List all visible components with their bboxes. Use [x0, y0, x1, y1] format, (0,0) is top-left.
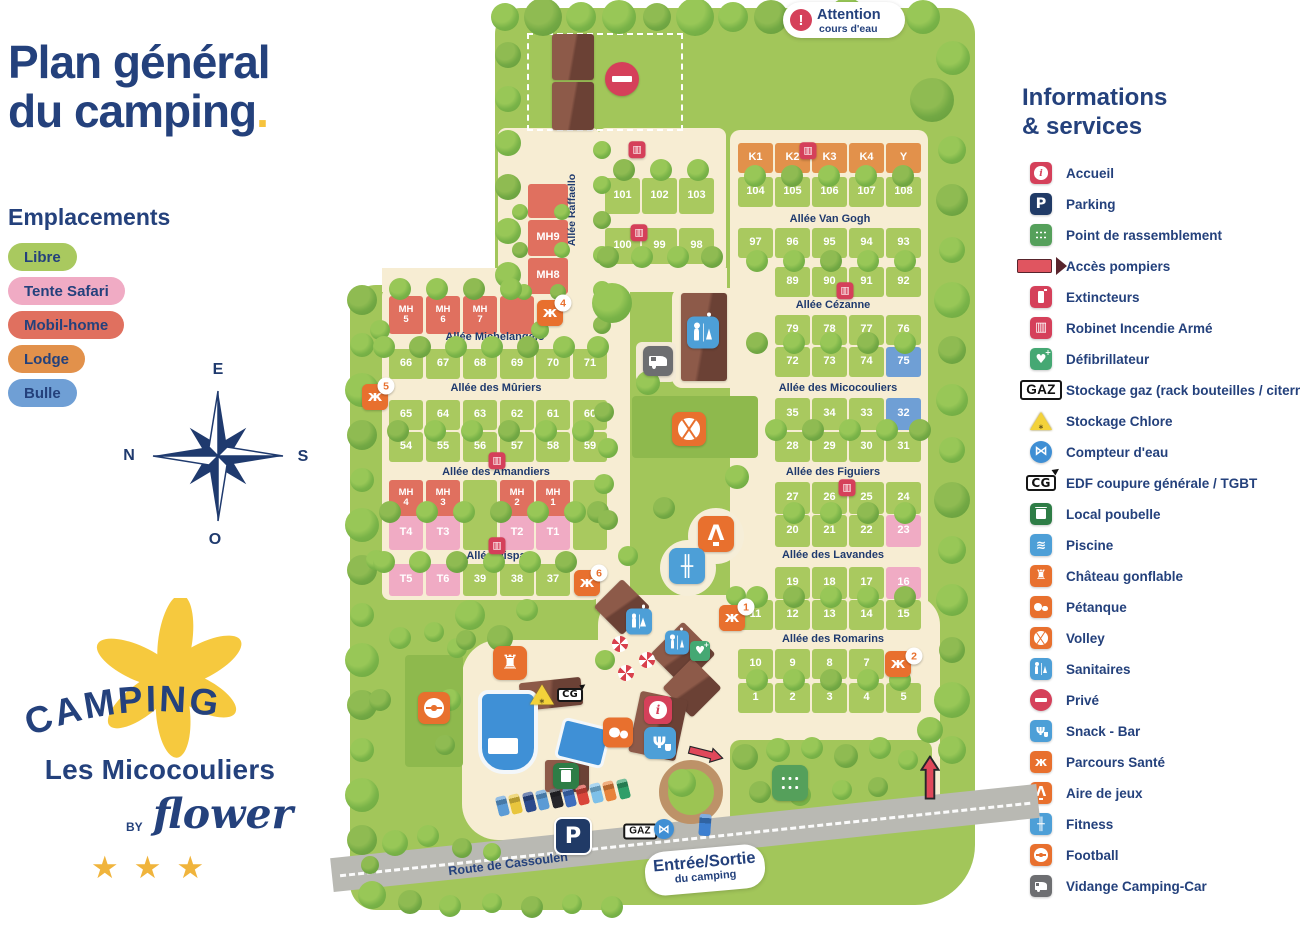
tree: [398, 890, 422, 914]
parcours-badge-6: 6: [591, 565, 608, 582]
map-compteur-marker: ⋈: [654, 819, 674, 839]
poubelle-icon: [1030, 503, 1052, 525]
service-item-parcours: жParcours Santé: [1022, 747, 1300, 778]
tree: [373, 336, 395, 358]
tree: [463, 278, 485, 300]
service-icon-wrap: i: [1022, 162, 1060, 184]
tree: [939, 237, 965, 263]
tree: [597, 246, 619, 268]
service-icon-wrap: ≋: [1022, 534, 1060, 556]
tree: [857, 586, 879, 608]
petanque-icon: [1030, 596, 1052, 618]
tree: [347, 825, 377, 855]
tree: [857, 502, 879, 524]
tree: [424, 420, 446, 442]
tree: [894, 250, 916, 272]
tree: [934, 682, 970, 718]
legend-pill-mobil: Mobil-home: [8, 311, 124, 339]
logo-stars: ★★★: [10, 850, 300, 886]
chateau-icon: ♜: [493, 646, 527, 680]
tree: [802, 419, 824, 441]
parcours-icon: ж: [1030, 751, 1052, 773]
ria-icon: ▥: [489, 538, 506, 555]
tree: [373, 551, 395, 573]
service-label: Snack - Bar: [1066, 724, 1140, 739]
tree: [417, 825, 439, 847]
tree: [613, 159, 635, 181]
service-icon-wrap: [1022, 689, 1060, 711]
service-item-piscine: ≋Piscine: [1022, 530, 1300, 561]
service-label: Robinet Incendie Armé: [1066, 321, 1213, 336]
tree: [389, 627, 411, 649]
tree: [389, 278, 411, 300]
map-chateau-marker: ♜: [493, 646, 527, 680]
tree: [594, 402, 614, 422]
tree: [643, 3, 671, 31]
map-arrow-right-marker: [688, 730, 724, 772]
tree: [345, 508, 379, 542]
noentry-icon: [605, 62, 639, 96]
map-sanitaires-marker: [626, 609, 652, 640]
map-snack-marker: Ψ: [644, 727, 676, 759]
service-label: Parcours Santé: [1066, 755, 1165, 770]
tree: [832, 780, 852, 800]
tree: [857, 250, 879, 272]
plot-102: 102: [642, 178, 677, 214]
flower-logo-icon: CAMPING: [10, 598, 310, 768]
service-label: Stockage Chlore: [1066, 414, 1173, 429]
tree: [482, 893, 502, 913]
tree: [917, 717, 943, 743]
tree: [749, 781, 771, 803]
tree: [445, 336, 467, 358]
snack-icon: Ψ: [1030, 720, 1052, 742]
map-parking-marker: P: [554, 817, 592, 855]
tree: [687, 159, 709, 181]
service-label: Défibrillateur: [1066, 352, 1149, 367]
service-icon-wrap: ♥+: [1022, 348, 1060, 370]
parcours-badge-4: 4: [555, 295, 572, 312]
tree: [495, 174, 521, 200]
car-on-road: [698, 814, 712, 837]
tree: [495, 218, 521, 244]
service-item-cg: CG▶EDF coupure générale / TGBT: [1022, 468, 1300, 499]
service-icon-wrap: [1022, 844, 1060, 866]
legend-heading: Emplacements: [8, 204, 170, 231]
svg-text:CAMPING: CAMPING: [19, 678, 223, 743]
tree: [593, 211, 611, 229]
tree: [409, 336, 431, 358]
tree: [898, 750, 918, 770]
map-noentry-marker: [605, 62, 639, 96]
tree: [783, 332, 805, 354]
service-label: Volley: [1066, 631, 1105, 646]
map-football-marker: [418, 692, 450, 724]
ria-icon: ▥: [631, 225, 648, 242]
map-arrow-up-marker: [920, 756, 940, 811]
tree: [598, 438, 618, 458]
tree: [495, 42, 521, 68]
private-building: [552, 82, 594, 130]
sidebar-heading: Informations& services: [1022, 84, 1300, 142]
map-vidange-marker: [643, 346, 673, 376]
service-label: Château gonflable: [1066, 569, 1183, 584]
tree: [746, 332, 768, 354]
page-title: Plan général du camping.: [8, 38, 270, 136]
tree: [350, 738, 374, 762]
tree: [936, 584, 968, 616]
tree: [521, 896, 543, 918]
chateau-icon: ♜: [1030, 565, 1052, 587]
map-cg-marker: CG▶: [561, 684, 579, 704]
tree: [818, 165, 840, 187]
tree: [783, 502, 805, 524]
ria-icon: ▥: [837, 283, 854, 300]
tree: [594, 474, 614, 494]
tree: [350, 333, 374, 357]
tree: [491, 3, 519, 31]
map-ria-marker: ▥: [800, 140, 817, 159]
map-ria-marker: ▥: [489, 450, 506, 469]
map-rassemblement-marker: [772, 765, 808, 801]
tree: [595, 650, 615, 670]
accueil-icon: i: [1030, 162, 1052, 184]
emplacements-legend: LibreTente SafariMobil-homeLodgeBulle: [8, 243, 125, 407]
page: Route de Cassoulen Allée Raffaello K1K2K…: [0, 0, 1300, 931]
tree: [936, 384, 968, 416]
service-item-fitness: ╫Fitness: [1022, 809, 1300, 840]
tree: [461, 420, 483, 442]
service-icon-wrap: [1022, 286, 1060, 308]
tree: [876, 419, 898, 441]
service-item-vidange: Vidange Camping-Car: [1022, 871, 1300, 902]
tree: [894, 586, 916, 608]
rassemblement-icon: [1030, 224, 1052, 246]
tree: [598, 510, 618, 530]
service-icon-wrap: GAZ: [1022, 380, 1060, 400]
chlore-icon: ∗: [1030, 410, 1052, 432]
alley-label: Allée des Micocouliers: [779, 382, 898, 394]
tree: [765, 419, 787, 441]
map-defib-marker: ♥+: [690, 641, 710, 661]
tree: [439, 895, 461, 917]
services-list: iAccueilPParkingPoint de rassemblementAc…: [1022, 158, 1300, 902]
service-label: Parking: [1066, 197, 1116, 212]
tree: [382, 830, 408, 856]
tree: [938, 336, 966, 364]
tree: [894, 332, 916, 354]
service-icon-wrap: [1022, 658, 1060, 680]
map-petanque-marker: [603, 718, 633, 753]
legend-pill-libre: Libre: [8, 243, 77, 271]
tree: [498, 420, 520, 442]
tree: [535, 420, 557, 442]
compass: E N S O: [115, 360, 325, 555]
gaz-icon: GAZ: [623, 824, 657, 840]
service-item-defib: ♥+Défibrillateur: [1022, 344, 1300, 375]
map-ria-marker: ▥: [839, 477, 856, 496]
tree: [820, 586, 842, 608]
tree: [379, 501, 401, 523]
attention-badge: ! Attention cours d'eau: [783, 2, 905, 38]
tree: [424, 622, 444, 642]
volley-icon: [1030, 627, 1052, 649]
compass-top-label: E: [213, 361, 224, 379]
tree: [572, 420, 594, 442]
service-icon-wrap: CG▶: [1022, 472, 1060, 494]
piscine-icon: ≋: [1030, 534, 1052, 556]
service-label: Accueil: [1066, 166, 1114, 181]
private-building: [552, 34, 594, 80]
service-icon-wrap: ▥: [1022, 317, 1060, 339]
tree: [483, 843, 501, 861]
service-item-accueil: iAccueil: [1022, 158, 1300, 189]
tree: [554, 242, 570, 258]
tree: [481, 336, 503, 358]
service-label: Sanitaires: [1066, 662, 1131, 677]
tree: [554, 204, 570, 220]
map-sanitaires-marker: [687, 317, 719, 354]
service-item-ria: ▥Robinet Incendie Armé: [1022, 313, 1300, 344]
tree: [426, 278, 448, 300]
warning-icon: !: [790, 9, 812, 31]
map-accueil-marker: i: [644, 696, 672, 724]
map-ria-marker: ▥: [629, 139, 646, 158]
poubelle-icon: [553, 763, 579, 789]
service-label: Vidange Camping-Car: [1066, 879, 1207, 894]
map-gaz-marker: GAZ: [623, 821, 657, 840]
windmill-icon: [639, 652, 655, 668]
tree: [592, 283, 632, 323]
vidange-icon: [1030, 875, 1052, 897]
tree: [939, 637, 965, 663]
service-label: Extincteurs: [1066, 290, 1140, 305]
tree: [347, 285, 377, 315]
service-item-rassemblement: Point de rassemblement: [1022, 220, 1300, 251]
service-label: Accès pompiers: [1066, 259, 1170, 274]
compteur-icon: ⋈: [654, 819, 674, 839]
service-item-snack: ΨSnack - Bar: [1022, 716, 1300, 747]
tree: [801, 737, 823, 759]
service-icon-wrap: [1022, 596, 1060, 618]
chlore-icon: ∗: [530, 683, 554, 707]
tree: [909, 419, 931, 441]
map-ria-marker: ▥: [837, 280, 854, 299]
tree: [409, 551, 431, 573]
tree: [435, 735, 455, 755]
plot-103: 103: [679, 178, 714, 214]
alley-label: Allée des Mûriers: [450, 382, 541, 394]
compass-right-label: S: [298, 448, 309, 466]
tree: [939, 437, 965, 463]
tree: [350, 468, 374, 492]
windmill-icon: [618, 665, 634, 681]
service-label: Compteur d'eau: [1066, 445, 1168, 460]
service-item-volley: Volley: [1022, 623, 1300, 654]
service-icon-wrap: [1022, 255, 1060, 277]
service-item-sanitaires: Sanitaires: [1022, 654, 1300, 685]
vidange-icon: [643, 346, 673, 376]
petanque-icon: [603, 718, 633, 748]
tree: [766, 738, 790, 762]
prive-icon: [1030, 689, 1052, 711]
tree: [746, 669, 768, 691]
alley-label: Allée Van Gogh: [790, 213, 871, 225]
logo-by: BY: [126, 820, 143, 834]
tree: [855, 165, 877, 187]
tree: [512, 242, 528, 258]
plot-MH7: MH7: [463, 296, 497, 334]
tree: [601, 896, 623, 918]
legend-pill-bulle: Bulle: [8, 379, 77, 407]
service-icon-wrap: [1022, 875, 1060, 897]
service-label: Pétanque: [1066, 600, 1127, 615]
service-item-pompiers: Accès pompiers: [1022, 251, 1300, 282]
tree: [869, 737, 891, 759]
tree: [446, 551, 468, 573]
tree: [516, 599, 538, 621]
tree: [566, 2, 596, 32]
tree: [553, 336, 575, 358]
tree: [453, 501, 475, 523]
ria-icon: ▥: [629, 142, 646, 159]
ria-icon: ▥: [489, 453, 506, 470]
title-accent-dot: .: [256, 85, 268, 137]
service-label: Privé: [1066, 693, 1099, 708]
arrow-right-icon: [688, 730, 724, 772]
parcours-badge-2: 2: [906, 648, 923, 665]
tree: [744, 165, 766, 187]
swimming-pool: [478, 690, 538, 774]
tree: [667, 246, 689, 268]
logo-brand: flower: [153, 790, 293, 838]
tree: [653, 497, 675, 519]
tree: [839, 419, 861, 441]
map-fitness-marker: ╫: [669, 548, 705, 584]
sanitaires-icon: [626, 609, 652, 635]
logo-word: CAMPING: [19, 678, 223, 743]
parking-icon: P: [554, 817, 592, 855]
compteur-icon: ⋈: [1030, 441, 1052, 463]
map-sanitaires-marker: [665, 631, 689, 660]
tree: [820, 669, 842, 691]
service-label: Football: [1066, 848, 1119, 863]
map-poubelle-marker: [553, 763, 579, 789]
tree: [345, 643, 379, 677]
map-ria-marker: ▥: [489, 535, 506, 554]
sanitaires-icon: [1030, 658, 1052, 680]
tree: [820, 332, 842, 354]
tree: [500, 278, 522, 300]
plot-MH6: MH6: [426, 296, 460, 334]
tree: [517, 336, 539, 358]
tree: [512, 204, 528, 220]
tree: [725, 465, 749, 489]
tree: [452, 838, 472, 858]
tree: [834, 744, 858, 768]
tree: [668, 769, 696, 797]
tree: [593, 176, 611, 194]
jeux-icon: Λ: [698, 516, 734, 552]
tree: [892, 165, 914, 187]
arrow-up-icon: [920, 756, 940, 811]
alley-label: Allée Cézanne: [796, 299, 871, 311]
service-icon-wrap: ♜: [1022, 565, 1060, 587]
tree: [587, 336, 609, 358]
tree: [416, 501, 438, 523]
ria-icon: ▥: [800, 143, 817, 160]
plot-MH5: MH5: [389, 296, 423, 334]
pool-step: [488, 738, 518, 754]
defib-icon: ♥+: [1030, 348, 1052, 370]
tree: [868, 777, 888, 797]
tree: [369, 689, 391, 711]
legend-pill-safari: Tente Safari: [8, 277, 125, 305]
tree: [783, 586, 805, 608]
tree: [618, 546, 638, 566]
alley-label: Allée des Lavandes: [782, 549, 884, 561]
service-item-extincteurs: Extincteurs: [1022, 282, 1300, 313]
service-icon-wrap: [1022, 224, 1060, 246]
parcours-badge-1: 1: [738, 599, 755, 616]
tree: [820, 250, 842, 272]
rassemblement-icon: [772, 765, 808, 801]
compass-bottom-label: O: [209, 531, 221, 549]
tree: [602, 0, 636, 34]
ria-icon: ▥: [1030, 317, 1052, 339]
tree: [495, 130, 521, 156]
tree: [345, 778, 379, 812]
tree: [387, 420, 409, 442]
tree: [490, 501, 512, 523]
service-item-gaz: GAZStockage gaz (rack bouteilles / citer…: [1022, 375, 1300, 406]
tree: [361, 856, 379, 874]
service-item-petanque: Pétanque: [1022, 592, 1300, 623]
tree: [857, 332, 879, 354]
tree: [701, 246, 723, 268]
extincteurs-icon: [1030, 286, 1052, 308]
service-label: EDF coupure générale / TGBT: [1066, 476, 1257, 491]
service-icon-wrap: Ψ: [1022, 720, 1060, 742]
tree: [358, 881, 386, 909]
alley-label: Allée des Romarins: [782, 633, 884, 645]
map-ria-marker: ▥: [631, 222, 648, 241]
tree: [783, 250, 805, 272]
tree: [455, 600, 485, 630]
tree: [527, 501, 549, 523]
service-icon-wrap: ж: [1022, 751, 1060, 773]
service-label: Point de rassemblement: [1066, 228, 1222, 243]
tree: [936, 184, 968, 216]
tree: [938, 536, 966, 564]
map-chlore-marker: ∗: [530, 683, 554, 710]
tree: [938, 736, 966, 764]
alley-label: Allée des Figuiers: [786, 466, 880, 478]
fitness-icon: ╫: [669, 548, 705, 584]
tree: [350, 603, 374, 627]
defib-icon: ♥+: [690, 641, 710, 661]
tree: [781, 165, 803, 187]
attention-title: Attention: [817, 7, 881, 23]
tree: [732, 744, 758, 770]
service-item-poubelle: Local poubelle: [1022, 499, 1300, 530]
service-item-jeux: ΛAire de jeux: [1022, 778, 1300, 809]
parking-icon: P: [1030, 193, 1052, 215]
tree: [631, 246, 653, 268]
tree: [857, 669, 879, 691]
service-item-prive: Privé: [1022, 685, 1300, 716]
service-icon-wrap: [1022, 503, 1060, 525]
